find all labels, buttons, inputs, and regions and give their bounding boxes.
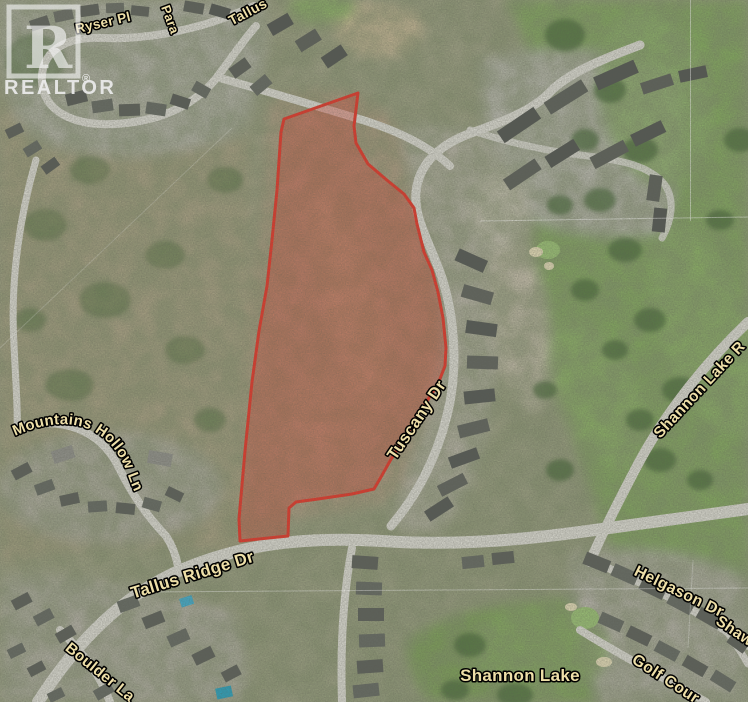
realtor-logo-letter: R bbox=[24, 14, 73, 82]
realtor-brand-text: REALTOR bbox=[4, 77, 116, 99]
photo-grain-overlay bbox=[0, 0, 748, 702]
map-viewport[interactable]: Ryser PlParaTallusMountains Hollow LnTal… bbox=[0, 0, 748, 702]
place-label-shannon-lake: Shannon Lake bbox=[460, 666, 580, 685]
aerial-map-svg: Ryser PlParaTallusMountains Hollow LnTal… bbox=[0, 0, 748, 702]
registered-trademark-symbol: ® bbox=[82, 73, 93, 85]
